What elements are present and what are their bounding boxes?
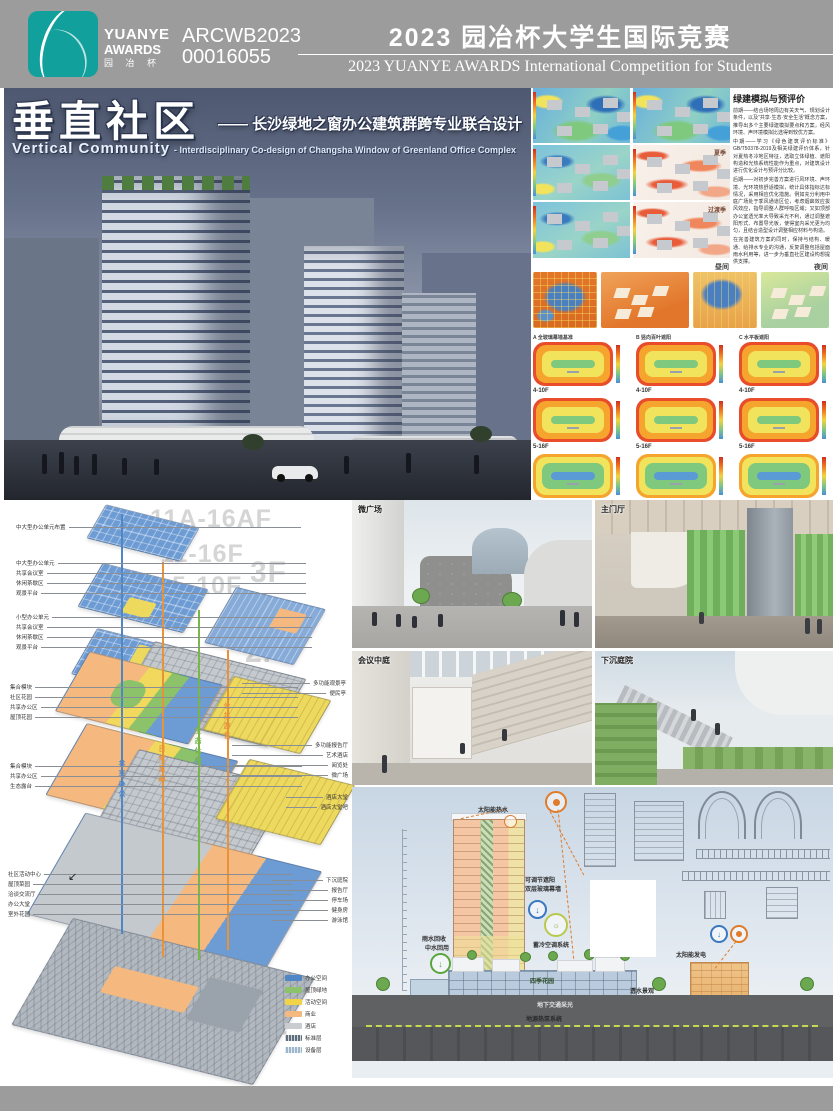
header-divider <box>298 54 833 55</box>
competition-poster: YUANYE AWARDS 园 冶 杯 ARCWB2023 00016055 2… <box>0 0 833 1111</box>
sun-icon <box>545 791 567 813</box>
person-silhouette <box>438 614 443 627</box>
ceiling <box>595 500 833 534</box>
floor-function-label: 休闲茶歇区 <box>16 580 306 586</box>
solar-collector-icon <box>504 815 517 828</box>
rooftop-box <box>452 957 484 972</box>
tree <box>652 977 666 991</box>
legend-item: 活动空间 <box>285 998 347 1006</box>
wall-detail-drawing <box>634 801 684 861</box>
shading-scheme-grid: A 全玻璃幕墙基准 B 竖向百叶遮阳 C 水平板遮阳 4-10F 4-10F 4… <box>533 334 833 502</box>
project-subtitle-en: - Interdisciplinary Co-design of Changsh… <box>174 145 516 155</box>
floor-function-label: 报告厅 <box>272 887 348 893</box>
floor-function-label: 多功能报告厅 <box>232 742 348 748</box>
wind-sim-tile <box>633 88 730 143</box>
render-plaza: 微广场 <box>352 500 592 648</box>
person-silhouette <box>74 456 79 475</box>
hvac-molecule-icon: ☼ <box>544 913 568 937</box>
legend-label: 标准层 <box>305 1034 322 1042</box>
thermal-plan-day <box>533 272 597 328</box>
label-permeable: 透水景观 <box>630 986 654 995</box>
person-silhouette <box>344 456 349 474</box>
legend-swatch-1 <box>285 987 302 993</box>
labels-mid-floor-1: 中大型办公单元共享会议室休闲茶歇区观景平台 <box>16 560 306 596</box>
label-rain-recycle: 雨水回收 <box>422 934 446 943</box>
render-label-atrium: 会议中庭 <box>358 655 390 666</box>
floor-range-label: 5-16F <box>533 444 549 450</box>
floor-range-label: 4-10F <box>739 388 755 394</box>
render-atrium: 会议中庭 <box>352 651 592 785</box>
floor-function-label: 下沉庭院 <box>272 877 348 883</box>
green-wall <box>795 534 833 616</box>
wind-sim-tile: 夏季 <box>633 145 730 200</box>
person-silhouette <box>59 452 64 474</box>
scheme-header-c: C 水平板遮阳 <box>739 334 769 341</box>
floor-function-label: 阅览处 <box>232 762 348 768</box>
competition-title-cn: 2023 园冶杯大学生国际竞赛 <box>300 18 820 54</box>
floor-function-label: 屋顶花园 <box>10 714 298 720</box>
tunnel-section-drawing <box>754 791 802 839</box>
thermal-sim-row: 昼间 夜间 <box>533 262 833 330</box>
strip-label-eco: 生态休闲 <box>192 727 202 767</box>
building-footprints <box>647 214 662 224</box>
scheme-plan <box>636 454 716 498</box>
floor-function-label: 社区活动中心 <box>8 871 292 877</box>
legend-swatch-3 <box>285 1011 302 1017</box>
beam-detail-drawing <box>696 849 830 859</box>
floor-function-label: 便民亭 <box>242 690 346 696</box>
wind-sim-tile <box>533 202 630 258</box>
competition-title-en: 2023 YUANYE AWARDS International Competi… <box>300 58 820 76</box>
exploded-axonometric-diagram: 11A-16AF 11-16F 5-10F 3F 2F 1F -2F <box>4 502 350 1065</box>
floor-function-label: 观景平台 <box>16 644 312 650</box>
floor-function-label: 洽谈交流厅 <box>8 891 292 897</box>
main-tower <box>102 176 250 440</box>
plate-zone <box>186 977 263 1032</box>
geothermal-loop-line <box>366 1025 818 1027</box>
ventilation-arrow-icon: ↓ <box>710 925 728 943</box>
legend-label: 屋顶绿地 <box>305 986 327 994</box>
label-geothermal: 地源热泵系统 <box>526 1014 562 1023</box>
person-silhouette <box>560 610 565 626</box>
scheme-plan <box>636 398 716 442</box>
legend-label: 办公空间 <box>305 974 327 982</box>
legend-item: 商业 <box>285 1010 347 1018</box>
labels-hotel: 酒店大堂酒店大堂吧 <box>286 794 348 810</box>
person-silhouette <box>406 453 411 473</box>
legend-swatch-5 <box>285 1035 302 1041</box>
green-sim-text-block: 绿建模拟与预评价 前期——结合场地周边有关天气、规划设计条件，以及“共享·生态·… <box>733 92 830 268</box>
wind-sim-tile <box>533 88 630 143</box>
floor-function-label: 停车场 <box>272 897 348 903</box>
render-label-lobby: 主门厅 <box>601 504 625 515</box>
render-court: 下沉庭院 <box>595 651 833 785</box>
label-solar-pv: 太阳能发电 <box>676 950 706 959</box>
label-shading-1: 可调节遮阳 <box>525 875 555 884</box>
thermal-plan-night <box>693 272 757 328</box>
court-floor <box>657 769 833 785</box>
wind-sim-tile: 过渡季 <box>633 202 730 258</box>
sun-icon <box>730 925 748 943</box>
yuanye-awards-logo-icon <box>28 11 98 77</box>
floor-function-label: 健身房 <box>272 907 348 913</box>
car <box>272 466 318 479</box>
floor-range-label: 4-10F <box>636 388 652 394</box>
rooftop-box <box>557 960 593 972</box>
labels-1f-left: 社区活动中心屋顶菜园洽谈交流厅办公大堂室外花园 <box>8 871 292 917</box>
project-title-en: Vertical Community <box>12 140 170 157</box>
tree <box>548 951 558 961</box>
footer-bar <box>0 1086 833 1111</box>
plaza-paving <box>352 606 592 648</box>
building-footprints <box>547 214 562 224</box>
label-solar-water: 太阳能热水 <box>478 805 508 814</box>
label-garden: 四季花园 <box>530 976 554 985</box>
tree <box>412 588 430 604</box>
legend-label: 酒店 <box>305 1022 316 1030</box>
floor-function-label: 观景平台 <box>16 590 306 596</box>
glass-drum <box>472 528 528 574</box>
legend-swatch-6 <box>285 1047 302 1053</box>
floor-function-label: 多功能观景亭 <box>242 680 346 686</box>
legend-label: 活动空间 <box>305 998 327 1006</box>
entry-id-line1: ARCWB2023 <box>182 26 301 47</box>
plate-zone <box>100 966 199 1013</box>
green-sim-paragraph: 后期——对初步完善方案进行风环境、声环境、光环境热舒适模拟，统计具体指标达标情况… <box>733 177 830 235</box>
planter-detail-drawing <box>766 887 798 919</box>
legend-item: 标准层 <box>285 1034 347 1042</box>
person-silhouette <box>715 723 720 735</box>
green-sim-paragraph: 前期——结合场地周边有关天气、规划设计条件，以及“共享·生态·安全生活”概念方案… <box>733 108 830 137</box>
beam-detail-drawing <box>682 871 830 881</box>
blank-panel <box>590 880 656 957</box>
floor-function-label: 共享会议室 <box>16 624 312 630</box>
legend-item: 办公空间 <box>285 974 347 982</box>
legend-item: 设备层 <box>285 1046 347 1054</box>
person-silhouette <box>372 612 377 626</box>
floor-function-label: 共享会议室 <box>16 570 306 576</box>
person-silhouette <box>502 729 507 741</box>
project-subtitle-cn: —— 长沙绿地之窗办公建筑群跨专业联合设计 <box>218 113 522 134</box>
program-legend: 办公空间 屋顶绿地 活动空间 商业 酒店 标准层 设备层 <box>285 974 347 1054</box>
person-silhouette <box>574 612 579 627</box>
tree <box>470 426 492 442</box>
logo-line1: YUANYE <box>104 27 170 43</box>
label-underground: 地下交通采光 <box>537 1000 573 1009</box>
rooftop-box <box>492 959 520 972</box>
scheme-header-b: B 竖向百叶遮阳 <box>636 334 671 341</box>
header-bar: YUANYE AWARDS 园 冶 杯 ARCWB2023 00016055 2… <box>0 0 833 88</box>
floor-function-label: 小型办公单元 <box>16 614 312 620</box>
scheme-plan <box>739 454 819 498</box>
render-label-court: 下沉庭院 <box>601 655 633 666</box>
scheme-plan <box>533 342 613 386</box>
building-footprints <box>647 100 662 110</box>
floor-function-label: 游泳馆 <box>272 917 348 923</box>
label-hvac: 蓄冷空调系统 <box>533 940 569 949</box>
tunnel-section-drawing <box>698 791 746 839</box>
label-greywater: 中水回用 <box>425 943 449 952</box>
person-silhouette <box>92 454 97 475</box>
logo-line2: AWARDS <box>104 43 170 57</box>
tree <box>242 434 264 450</box>
scheme-plan <box>739 342 819 386</box>
legend-swatch-2 <box>285 999 302 1005</box>
legend-label: 商业 <box>305 1010 316 1018</box>
person-silhouette <box>122 458 127 475</box>
season-label-summer: 夏季 <box>714 148 726 157</box>
season-label-transition: 过渡季 <box>708 205 726 214</box>
logo-line3: 园 冶 杯 <box>104 59 170 68</box>
tree <box>376 977 390 991</box>
scheme-plan <box>739 398 819 442</box>
floor-function-label: 艺术酒店 <box>232 752 348 758</box>
legend-swatch-4 <box>285 1023 302 1029</box>
green-sim-title: 绿建模拟与预评价 <box>733 92 830 105</box>
floor-function-label: 办公大堂 <box>8 901 292 907</box>
atrium-floor <box>352 763 592 785</box>
thermal-axon-night <box>761 272 829 328</box>
tree <box>467 950 477 960</box>
logo-wordmark: YUANYE AWARDS 园 冶 杯 <box>104 27 170 69</box>
person-silhouette <box>412 616 417 628</box>
white-canopy <box>735 651 833 715</box>
floor-function-label: 酒店大堂吧 <box>286 804 348 810</box>
thermal-label-day: 昼间 <box>715 262 729 272</box>
green-sim-paragraphs: 前期——结合场地周边有关天气、规划设计条件，以及“共享·生态·安全生活”概念方案… <box>733 108 830 266</box>
level-ruler <box>402 829 407 991</box>
secondary-tower <box>304 246 404 458</box>
floor-function-label: 屋顶菜园 <box>8 881 292 887</box>
plaza-ground <box>4 440 531 500</box>
sustainability-section-diagram: ↓ ☼ ↓ ↓ 太阳能热水 可调节遮阳 双层玻璃幕墙 雨水回收 中水回用 蓄冷空… <box>352 787 833 1078</box>
person-silhouette <box>817 619 822 634</box>
person-silhouette <box>382 755 387 773</box>
thermal-label-night: 夜间 <box>814 262 828 272</box>
green-sim-paragraph: 中期——学习《绿色建筑评价标准》GB/T50378-2019及相关绿建评价体系，… <box>733 139 830 175</box>
floor-function-label: 酒店大堂 <box>286 794 348 800</box>
scheme-plan <box>636 342 716 386</box>
compass-arrow-icon: ↙ <box>68 870 77 883</box>
person-silhouette <box>396 614 401 627</box>
legend-item: 屋顶绿地 <box>285 986 347 994</box>
floor-range-label: 4-10F <box>533 388 549 394</box>
labels-2f-right: 多功能报告厅艺术酒店阅览处微广场 <box>232 742 348 778</box>
lobby-floor <box>595 616 833 648</box>
legend-item: 酒店 <box>285 1022 347 1030</box>
scheme-plan <box>533 454 613 498</box>
hero-rendering: 垂直社区 —— 长沙绿地之窗办公建筑群跨专业联合设计 Vertical Comm… <box>4 88 531 500</box>
floor-range-label: 5-16F <box>739 444 755 450</box>
label-shading-2: 双层玻璃幕墙 <box>525 884 561 893</box>
white-curved-building <box>524 540 592 610</box>
building-footprints <box>547 100 562 110</box>
person-silhouette <box>474 455 479 474</box>
person-silhouette <box>699 612 704 624</box>
wind-simulation-grid: 夏季 过渡季 <box>533 88 730 260</box>
floor-function-label: 室外花园 <box>8 911 292 917</box>
ventilation-arrow-icon: ↓ <box>528 900 547 919</box>
wall-detail-drawing <box>584 793 616 867</box>
legend-label: 设备层 <box>305 1046 322 1054</box>
building-footprints <box>547 157 562 167</box>
labels-top-floor: 中大型办公单元布置 <box>16 524 301 530</box>
entry-id-line2: 00016055 <box>182 47 301 68</box>
labels-3f-right: 多功能观景亭便民亭 <box>242 680 346 696</box>
floor-function-label: 中大型办公单元布置 <box>16 524 301 530</box>
thermal-axon-day <box>601 272 689 328</box>
floor-function-label: 微广场 <box>232 772 348 778</box>
floor-range-label: 5-16F <box>636 444 652 450</box>
person-silhouette <box>460 743 465 754</box>
scheme-header-a: A 全玻璃幕墙基准 <box>533 334 573 341</box>
render-label-plaza: 微广场 <box>358 504 382 515</box>
legend-swatch-0 <box>285 975 302 981</box>
floor-function-label: 生态露台 <box>10 783 302 789</box>
person-silhouette <box>691 709 696 721</box>
tree <box>800 977 814 991</box>
entry-id: ARCWB2023 00016055 <box>182 26 301 68</box>
column-detail-drawing <box>704 891 726 919</box>
labels-mid-floor-2: 小型办公单元共享会议室休闲茶歇区观景平台 <box>16 614 312 650</box>
tree <box>520 952 531 962</box>
person-silhouette <box>42 454 47 474</box>
green-wall <box>687 530 745 616</box>
ground-mass <box>352 995 833 1061</box>
floor-function-label: 共享办公区 <box>10 704 298 710</box>
person-silhouette <box>805 618 810 634</box>
floor-function-label: 休闲茶歇区 <box>16 634 312 640</box>
labels-1f-right: 下沉庭院报告厅停车场健身房游泳馆 <box>272 877 348 923</box>
planted-wall <box>595 703 657 785</box>
rainwater-icon: ↓ <box>430 953 451 974</box>
render-lobby: 主门厅 <box>595 500 833 648</box>
scheme-plan <box>533 398 613 442</box>
floor-function-label: 中大型办公单元 <box>16 560 306 566</box>
building-footprints <box>647 157 662 167</box>
foundation-piles <box>352 1027 833 1061</box>
wind-sim-tile <box>533 145 630 200</box>
person-silhouette <box>154 459 159 475</box>
solar-ray <box>550 811 585 875</box>
